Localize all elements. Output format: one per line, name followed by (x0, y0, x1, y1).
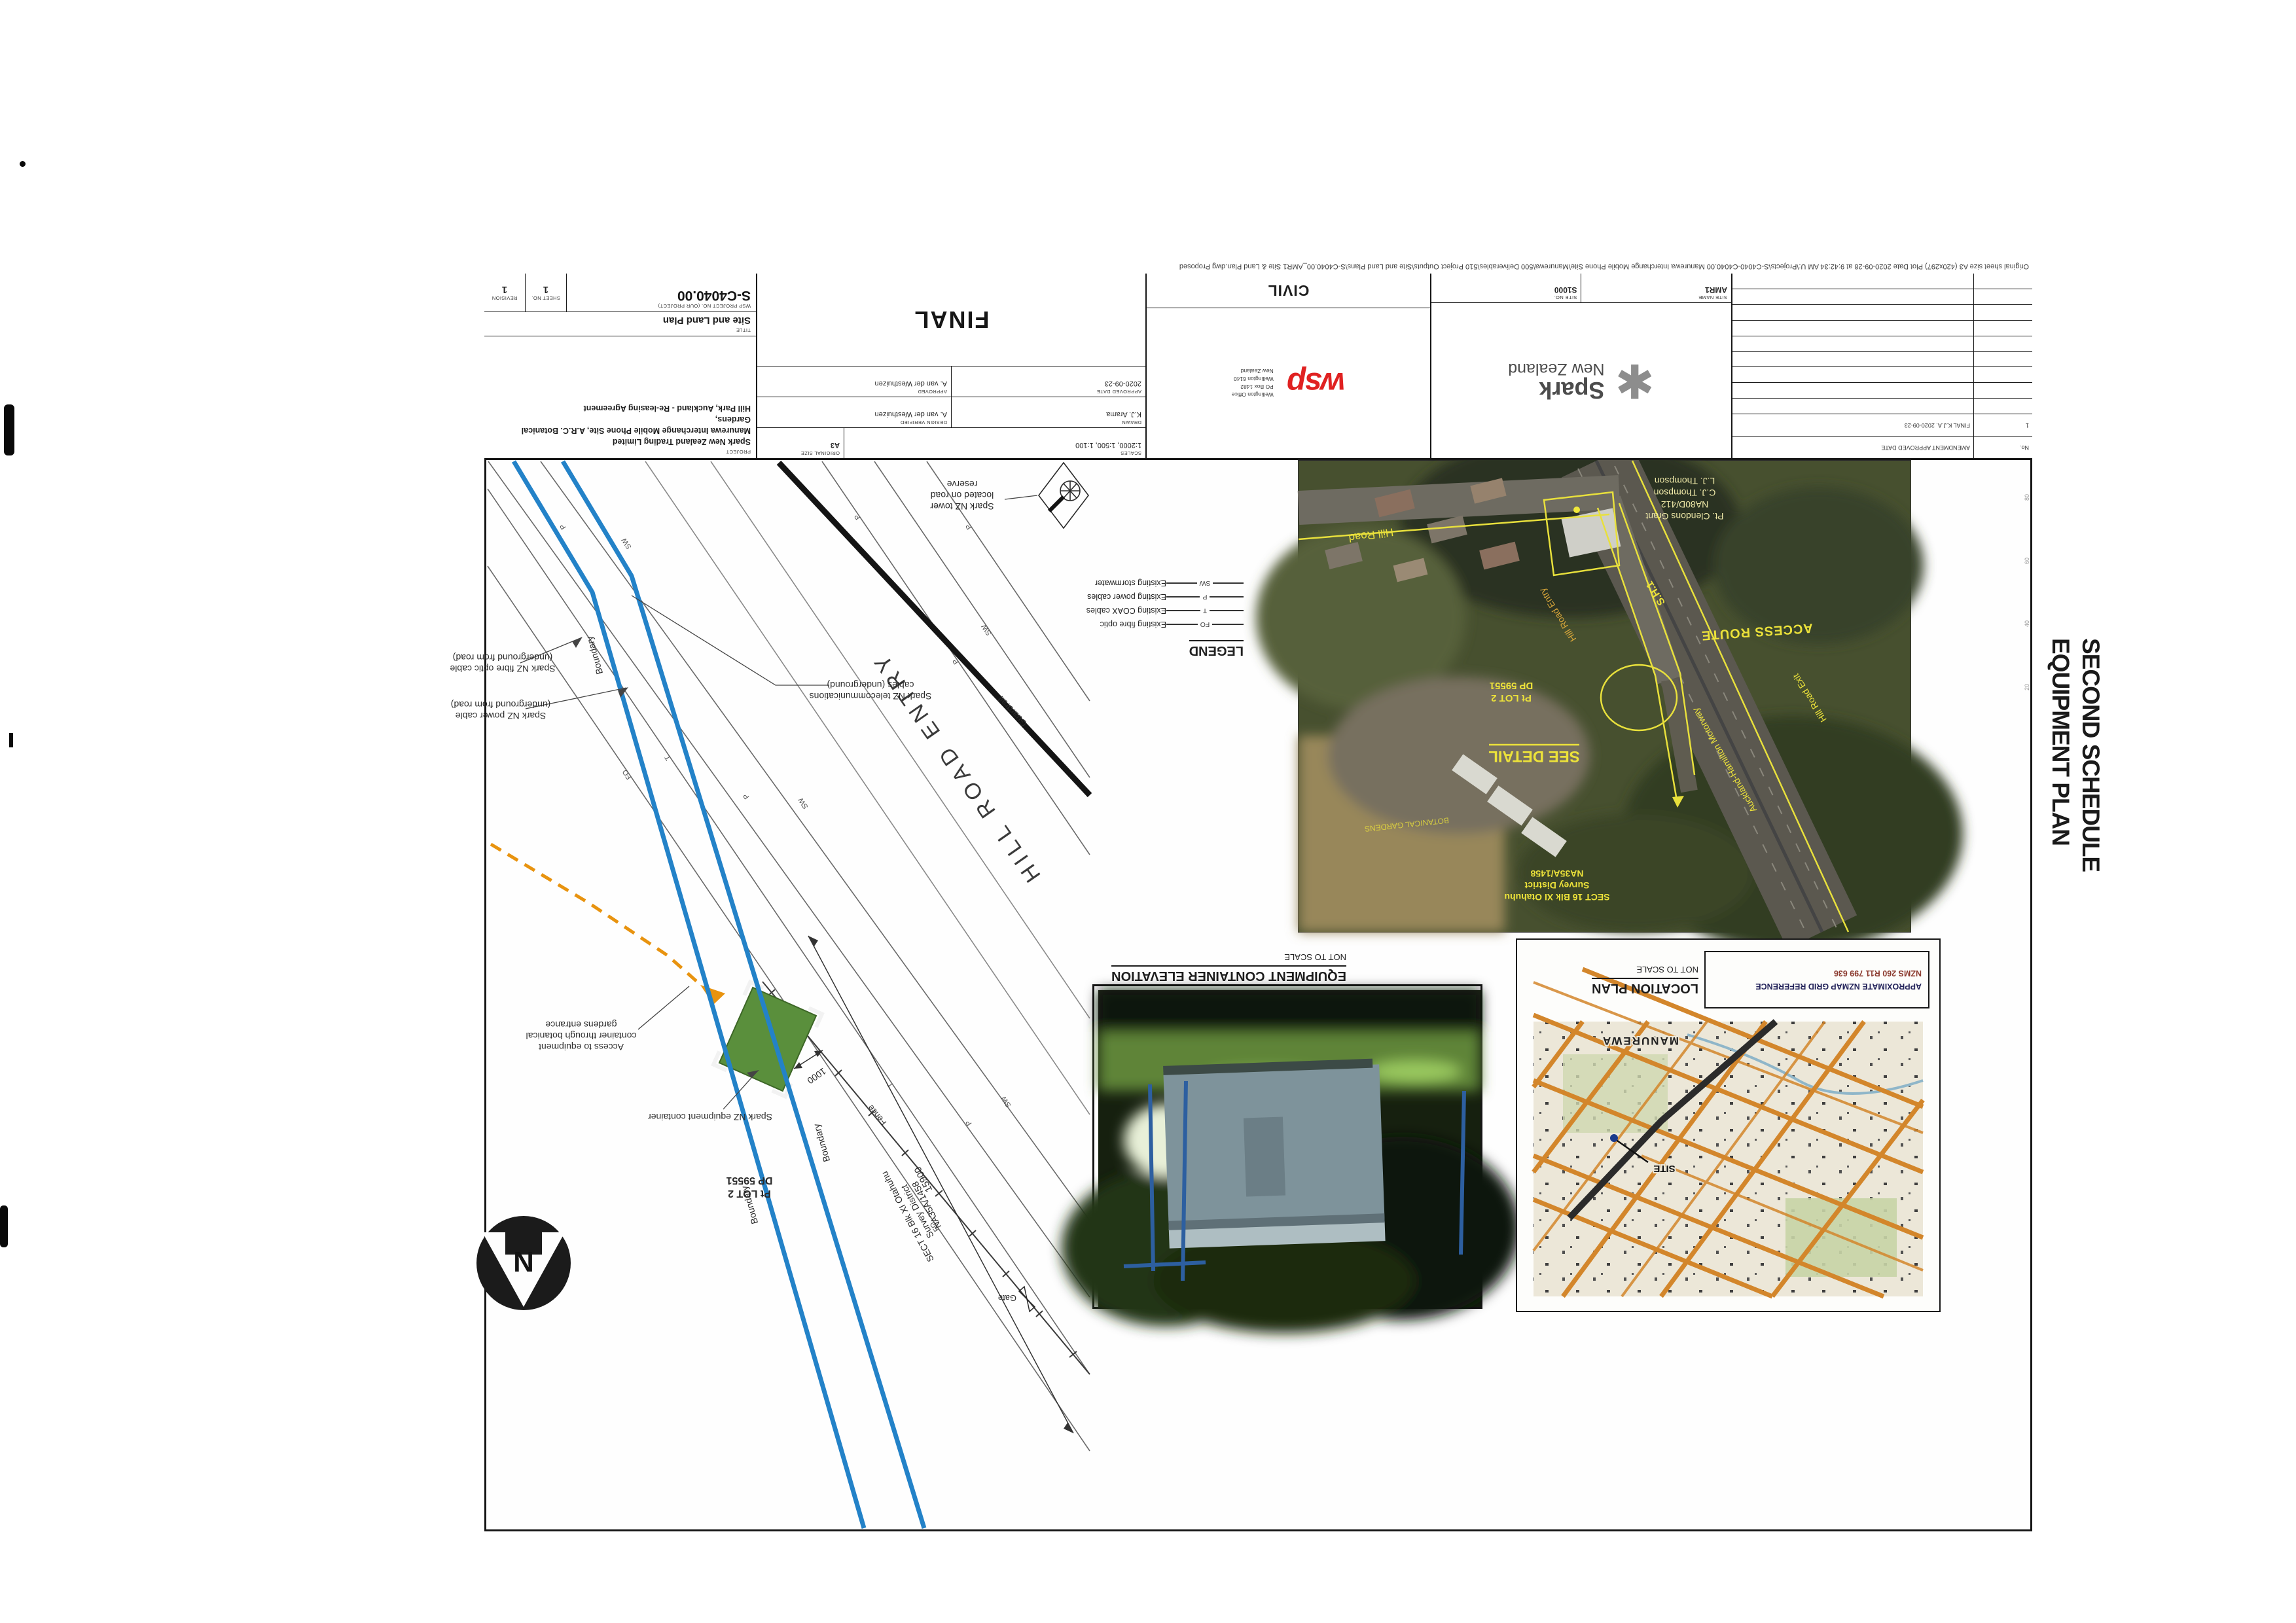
legend-item: P Existing power cables (1066, 592, 1244, 601)
svg-text:reserve: reserve (946, 479, 977, 490)
schedule-heading-line1: SECOND SCHEDULE (2075, 638, 2106, 1024)
scan-artifact (20, 161, 26, 167)
amendment-no-header: No. (1973, 436, 2032, 458)
gate-label: Gate (998, 1293, 1016, 1303)
scan-artifact (0, 1205, 8, 1247)
aerial-photo: Hill Road Hill Road Entry Hill Road Exit… (1299, 461, 1910, 932)
line-code: SW (620, 536, 633, 550)
elevation-photo-panel (1092, 984, 1482, 1309)
power-label: Spark NZ power cable (underground from r… (451, 687, 628, 721)
svg-text:Spark NZ telecommunications: Spark NZ telecommunications (810, 691, 932, 702)
amendment-row-text: FINAL K.J.A. 2020-09-23 (1732, 414, 1973, 436)
original-size-cell: ORIGINAL SIZE A3 (757, 428, 844, 458)
project-number-cell: WSP PROJECT No. (OUR PROJECT) S-C4040.00 (567, 274, 756, 312)
aerial-grant: L.J. Thompson (1655, 476, 1715, 486)
line-code: P (964, 1118, 973, 1127)
location-map: SITE MANUREWA (1534, 1022, 1923, 1296)
line-code: P (742, 792, 751, 800)
elevation-caption-title: EQUIPMENT CONTAINER ELEVATION (1111, 965, 1346, 983)
svg-text:Spark NZ fibre optic cable: Spark NZ fibre optic cable (450, 664, 555, 674)
wsp-office-address: Wellington Office PO Box 1482 Wellington… (1232, 368, 1274, 399)
wsp-logo: wsp (1288, 365, 1345, 401)
north-arrow: N (476, 1216, 571, 1310)
line-code: P (558, 522, 567, 531)
legend-line-sample: FO (1166, 620, 1244, 628)
ruler-mark: 60 (2024, 558, 2030, 564)
legend: LEGEND FO Existing fibre optic T Existin… (1066, 574, 1244, 658)
status-stamp: FINAL (757, 274, 1145, 366)
svg-text:located on road: located on road (931, 490, 994, 501)
revision-number-cell: REVISION 1 (484, 274, 526, 312)
sheet-number-cell: SHEET No. 1 (526, 274, 567, 312)
aerial-lot: DP 59551 (1490, 680, 1533, 691)
drawn-cell: DRAWN K.J. Arama (951, 397, 1145, 427)
legend-line-sample: SW (1166, 579, 1244, 587)
detail-site-plan: FO FO T T P P P SW SW SW P P SW P HILL R… (488, 461, 1090, 1528)
grid-reference-value: NZMS 260 R11 799 636 (1706, 969, 1922, 978)
approvals-section: SCALES 1:2000, 1:500, 1:100 ORIGINAL SIZ… (756, 274, 1145, 458)
legend-item: SW Existing stormwater (1066, 579, 1244, 588)
legend-item-label: Existing power cables (1087, 592, 1166, 601)
margin-ruler: 20 40 60 80 (2017, 494, 2030, 690)
dimension-15900 (808, 936, 1073, 1433)
amendment-table: No. AMENDMENT APPROVED DATE 1 FINAL K.J.… (1731, 274, 2032, 458)
map-town-label: MANUREWA (1602, 1035, 1679, 1047)
amendment-header: AMENDMENT APPROVED DATE (1732, 436, 1973, 458)
project-cell: PROJECT Spark New Zealand Trading Limite… (484, 336, 756, 458)
legend-item: T Existing COAX cables (1066, 606, 1244, 615)
plot-stamp-text: Original sheet size A3 (420x297) Plot Da… (1021, 262, 2029, 270)
utility-line-codes: FO FO T T P P P SW SW SW P P SW P (558, 512, 1013, 1233)
line-code: FO (621, 768, 634, 781)
aerial-sect: NA35A/1458 (1530, 868, 1583, 879)
aerial-lot: Pt LOT 2 (1491, 692, 1532, 704)
spark-logo-text2: New Zealand (1508, 359, 1604, 378)
schedule-heading: SECOND SCHEDULE EQUIPMENT PLAN (2045, 638, 2106, 1024)
tower-label: Spark NZ tower located on road reserve (930, 479, 1037, 512)
line-code: SW (999, 1094, 1013, 1109)
grid-reference-label: APPROXIMATE NZMAP GRID REFERENCE (1706, 982, 1922, 991)
aerial-sect: SECT 16 Blk XI Otahuhu (1504, 892, 1609, 902)
scan-artifact (9, 733, 13, 747)
svg-text:Spark NZ equipment container: Spark NZ equipment container (648, 1112, 772, 1122)
north-letter: N (513, 1246, 534, 1278)
site-name-cell: SITE NAME AMR1 (1581, 274, 1732, 302)
legend-item: FO Existing fibre optic (1066, 620, 1244, 629)
equipment-container (713, 982, 822, 1097)
consultant-section: wsp Wellington Office PO Box 1482 Wellin… (1145, 274, 1430, 458)
aerial-grant: C.J. Thompson (1654, 488, 1716, 498)
svg-text:(underground from road): (underground from road) (451, 700, 551, 710)
location-plan-panel: SITE MANUREWA APPROXIMATE NZMAP GRID REF… (1516, 938, 1941, 1312)
ruler-mark: 40 (2024, 620, 2030, 627)
title-block: No. AMENDMENT APPROVED DATE 1 FINAL K.J.… (484, 274, 2032, 460)
legend-title: LEGEND (1189, 640, 1244, 658)
aerial-grant: Pt. Clendons Grant (1645, 511, 1723, 522)
spark-logo-text: Spark (1508, 378, 1604, 402)
aerial-grant: NA80D/412 (1661, 499, 1709, 510)
location-caption: LOCATION PLAN NOT TO SCALE (1592, 965, 1698, 995)
boundary-label: Boundary (584, 635, 605, 675)
lot-label: Pt LOT 2 (728, 1188, 771, 1199)
line-code: SW (797, 796, 810, 810)
boundary-labels: Boundary Boundary Boundary (584, 635, 832, 1225)
svg-text:gardens entrance: gardens entrance (545, 1020, 617, 1030)
location-caption-scale: NOT TO SCALE (1592, 965, 1698, 974)
legend-item-label: Existing COAX cables (1086, 606, 1166, 615)
access-label: Access to equipment container through bo… (526, 986, 689, 1052)
discipline-label: CIVIL (1147, 274, 1430, 308)
client-logo-section: ✱ Spark New Zealand SITE NAME AMR1 SITE … (1430, 274, 1731, 458)
spark-logo-icon: ✱ (1615, 357, 1655, 404)
drawing-sheet: Original sheet size A3 (420x297) Plot Da… (484, 274, 2032, 1531)
map-site-label: SITE (1653, 1163, 1675, 1174)
legend-item-label: Existing fibre optic (1100, 620, 1166, 629)
dimension-1000-value: 1000 (805, 1066, 828, 1086)
fibre-label: Spark NZ fibre optic cable (underground … (450, 637, 583, 674)
aerial-see-detail: SEE DETAIL (1488, 747, 1580, 765)
project-section: PROJECT Spark New Zealand Trading Limite… (484, 274, 756, 458)
legend-line-sample: P (1166, 593, 1244, 601)
lot-label: DP 59551 (726, 1175, 772, 1186)
ruler-mark: 20 (2024, 684, 2030, 690)
approved-cell: APPROVED A. van der Westhuizen (757, 366, 951, 397)
grid-reference-box: APPROXIMATE NZMAP GRID REFERENCE NZMS 26… (1704, 951, 1929, 1008)
tower-symbol (1039, 463, 1088, 528)
site-no-cell: SITE No. S1000 (1431, 274, 1581, 302)
svg-text:Access to equipment: Access to equipment (539, 1042, 624, 1052)
svg-text:Spark NZ tower: Spark NZ tower (930, 501, 994, 512)
elevation-caption: EQUIPMENT CONTAINER ELEVATION NOT TO SCA… (1111, 952, 1346, 983)
svg-text:cables (underground): cables (underground) (827, 680, 914, 690)
scan-artifact (4, 404, 14, 455)
title-cell: TITLE Site and Land Plan (484, 312, 756, 336)
svg-text:(underground from road): (underground from road) (453, 652, 553, 663)
elevation-photo (1098, 990, 1480, 1307)
location-caption-title: LOCATION PLAN (1592, 978, 1698, 995)
verified-cell: DESIGN VERIFIED A. van der Westhuizen (757, 397, 951, 427)
scanned-lease-exhibit-page: Original sheet size A3 (420x297) Plot Da… (0, 0, 2296, 1623)
svg-text:Spark NZ power cable: Spark NZ power cable (456, 711, 547, 721)
legend-line-sample: T (1166, 607, 1244, 615)
svg-text:container through botanical: container through botanical (526, 1031, 637, 1041)
scales-cell: SCALES 1:2000, 1:500, 1:100 (844, 428, 1145, 458)
schedule-heading-line2: EQUIPMENT PLAN (2045, 638, 2075, 1024)
aerial-photo-panel: Hill Road Hill Road Entry Hill Road Exit… (1298, 460, 1911, 933)
amendment-row-no: 1 (1973, 414, 2032, 436)
approved-date-cell: APPROVED DATE 2020-09-23 (951, 366, 1145, 397)
aerial-sect: Survey District (1524, 880, 1589, 891)
legend-item-label: Existing stormwater (1095, 579, 1166, 588)
elevation-caption-scale: NOT TO SCALE (1111, 952, 1346, 962)
boundary-label: Boundary (811, 1122, 832, 1163)
line-code: SW (980, 622, 993, 637)
ruler-mark: 80 (2024, 494, 2030, 501)
